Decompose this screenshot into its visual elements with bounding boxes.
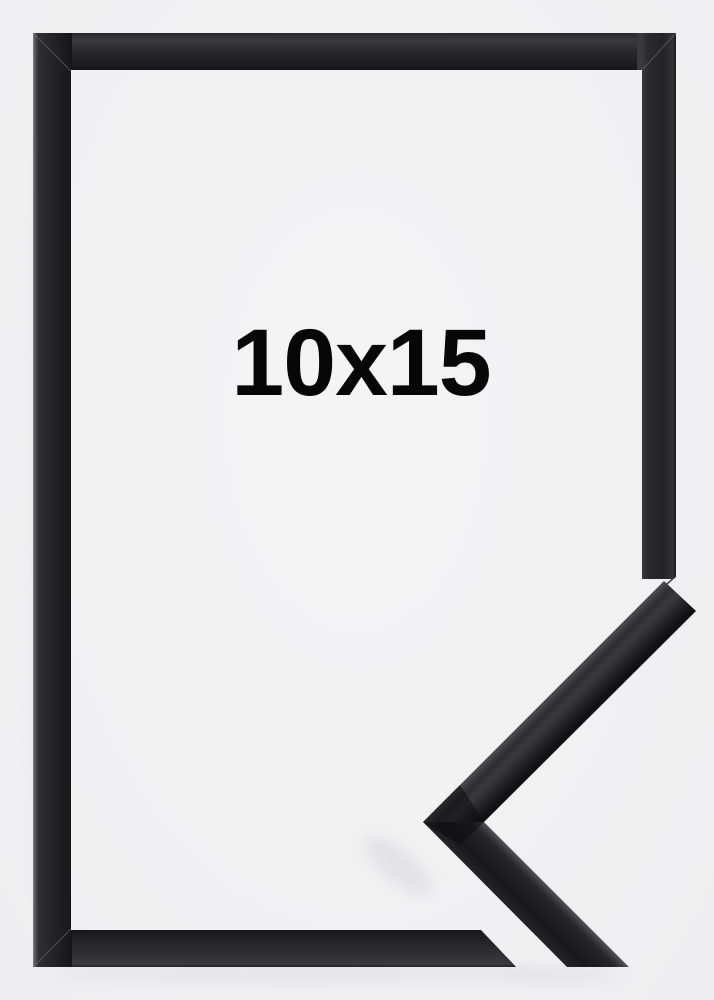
mitre-seams — [33, 33, 676, 967]
frame-left-bar — [33, 33, 72, 967]
frame-illustration — [0, 0, 714, 1000]
product-photo-black-frame: 10x15 — [0, 0, 714, 1000]
chevron-top-arm — [423, 581, 696, 822]
corner-sample-chevron — [423, 581, 696, 967]
size-label: 10x15 — [0, 297, 714, 429]
frame-body — [33, 33, 677, 968]
soft-shadows — [31, 140, 620, 983]
frame-top-bar — [33, 33, 676, 71]
